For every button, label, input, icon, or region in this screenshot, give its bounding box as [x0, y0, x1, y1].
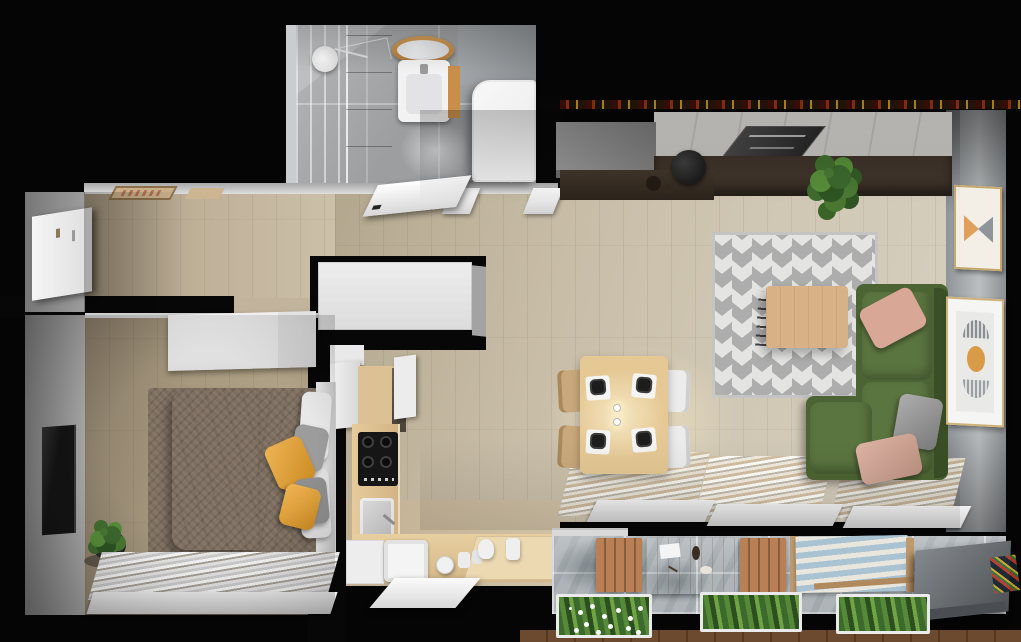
pendant-lamp-2	[613, 418, 621, 426]
tv-sketch-line-1	[748, 135, 806, 137]
framed-artwork-bowtie	[954, 185, 1002, 272]
art-ellipse-orange	[967, 346, 985, 373]
art-triangle-right	[978, 216, 993, 243]
balcony-bench-right	[740, 538, 786, 592]
place-setting-3	[585, 429, 610, 454]
window-sill-1	[587, 500, 716, 522]
neighbor-flower-strip	[560, 100, 1021, 109]
plate	[590, 433, 607, 450]
plate	[635, 430, 652, 447]
bedroom-plant-foliage	[100, 528, 108, 536]
kitchen-white-cabinet-b	[394, 354, 416, 419]
bed-duvet-white	[172, 390, 258, 550]
washbasin-faucet	[420, 64, 428, 74]
hallway-floor-planks	[84, 192, 335, 312]
doormat-2	[185, 188, 225, 199]
mirror-glass	[397, 40, 449, 60]
bathtub	[472, 80, 536, 182]
table-paper	[659, 543, 680, 559]
tv-sketch-line-2	[749, 147, 795, 149]
doormat-1	[108, 186, 177, 200]
kettle	[436, 556, 454, 574]
coffee-table	[766, 286, 848, 348]
kitchen-backsplash	[358, 366, 396, 428]
door-handle	[372, 205, 382, 210]
neighbor-color-strip	[990, 554, 1021, 593]
entry-door-handle-2	[72, 230, 75, 241]
shaft-top-white	[318, 262, 472, 330]
white-flowers	[569, 607, 572, 610]
place-setting-2	[631, 373, 657, 399]
planter-flowers	[556, 594, 652, 638]
hob-controls	[364, 478, 394, 481]
place-setting-1	[585, 375, 611, 401]
window-sill-2	[707, 504, 844, 526]
table-bottle	[692, 546, 700, 560]
burner	[380, 436, 392, 448]
burner	[362, 456, 374, 468]
sideboard-plant	[824, 168, 834, 178]
jar	[506, 538, 520, 560]
planter-green-center	[700, 592, 802, 632]
window-sill-3	[843, 506, 972, 528]
kitchen-white-tiles	[346, 540, 384, 584]
balcony-table	[646, 538, 738, 594]
burner	[362, 436, 374, 448]
place-setting-4	[631, 427, 657, 453]
wall-tv	[42, 425, 76, 535]
plate	[589, 378, 606, 395]
table-utensil	[668, 566, 678, 573]
doormat-pattern	[120, 190, 163, 196]
bathroom-floor-light-spot	[400, 120, 470, 180]
bathroom-back-wall-gray	[458, 25, 536, 85]
bedroom-plant	[100, 528, 108, 536]
bedroom-window-sill	[86, 592, 337, 614]
entry-door-handle	[56, 228, 60, 238]
washbasin-bowl	[406, 74, 442, 114]
framed-artwork-arcs	[946, 296, 1004, 427]
washbasin	[398, 60, 450, 122]
shaft-side-gray	[472, 265, 486, 336]
lounger-frame-right	[906, 538, 914, 592]
apartment-floor-plan-render	[0, 0, 1021, 642]
dining-table	[580, 356, 668, 474]
pitcher	[478, 539, 494, 559]
washbasin-shelf	[448, 66, 460, 118]
planter-green-right	[836, 594, 930, 634]
bar-stool	[672, 150, 706, 184]
main-sink	[384, 540, 428, 582]
entry-door-open	[32, 207, 92, 301]
plate	[635, 376, 652, 393]
counter-item-jar	[663, 184, 673, 194]
balcony-bench-left	[596, 538, 642, 592]
wardrobe	[168, 311, 316, 371]
burner	[380, 456, 392, 468]
sideboard-plant-foliage	[824, 168, 834, 178]
bathroom-left-glass-edge	[286, 25, 296, 183]
induction-hob	[358, 432, 398, 486]
pendant-lamp-1	[613, 404, 621, 412]
counter-item-pot	[646, 176, 661, 191]
table-bowl	[700, 566, 712, 574]
canister-1	[458, 552, 470, 568]
art-triangle-left	[964, 215, 979, 242]
